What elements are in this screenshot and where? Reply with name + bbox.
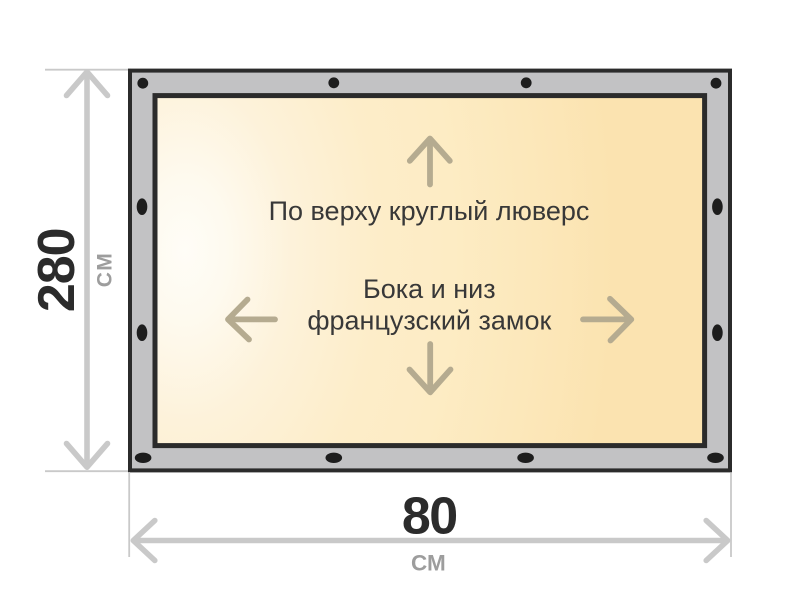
svg-text:Бока и низ: Бока и низ — [363, 274, 496, 304]
svg-text:СМ: СМ — [93, 252, 116, 287]
svg-text:280: 280 — [28, 228, 86, 312]
svg-text:СМ: СМ — [411, 550, 446, 575]
svg-text:французский замок: французский замок — [307, 305, 551, 335]
svg-text:По верху круглый люверс: По верху круглый люверс — [269, 196, 590, 226]
svg-text:80: 80 — [402, 487, 457, 545]
